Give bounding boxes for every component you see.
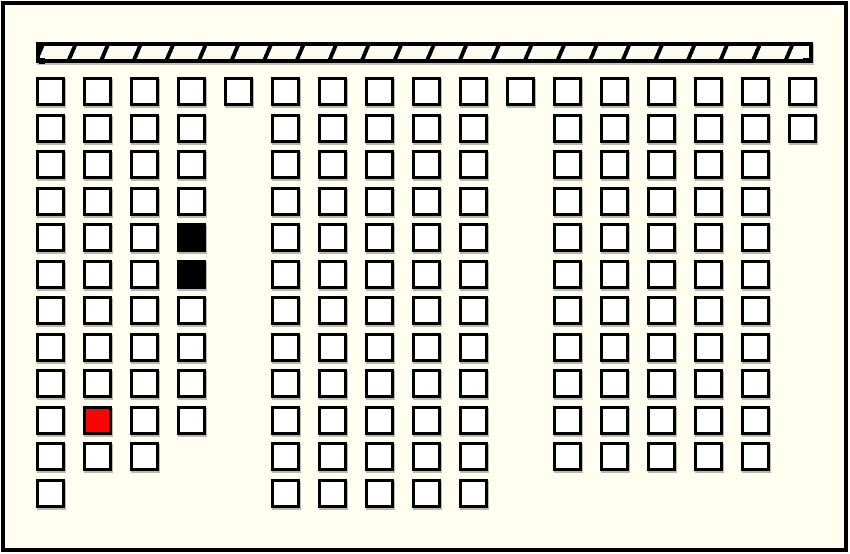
seat-r1c17[interactable] <box>788 77 817 106</box>
seat-r11c9[interactable] <box>412 442 441 471</box>
seat-r8c10[interactable] <box>459 333 488 362</box>
seat-r2c12[interactable] <box>553 114 582 143</box>
seat-r3c2[interactable] <box>83 150 112 179</box>
seat-r1c14[interactable] <box>647 77 676 106</box>
seat-r9c16[interactable] <box>741 369 770 398</box>
seat-r10c6[interactable] <box>271 406 300 435</box>
seat-r2c4[interactable] <box>177 114 206 143</box>
seat-r6c9[interactable] <box>412 260 441 289</box>
seat-r12c7[interactable] <box>318 479 347 508</box>
seat-r4c9[interactable] <box>412 187 441 216</box>
seat-r10c9[interactable] <box>412 406 441 435</box>
seat-r8c4[interactable] <box>177 333 206 362</box>
seat-r3c14[interactable] <box>647 150 676 179</box>
seat-r5c7[interactable] <box>318 223 347 252</box>
seat-r9c7[interactable] <box>318 369 347 398</box>
seat-r9c2[interactable] <box>83 369 112 398</box>
seat-r11c1[interactable] <box>36 442 65 471</box>
seat-r9c3[interactable] <box>130 369 159 398</box>
seat-r7c15[interactable] <box>694 296 723 325</box>
seat-r5c8[interactable] <box>365 223 394 252</box>
seat-r7c10[interactable] <box>459 296 488 325</box>
seat-r1c4[interactable] <box>177 77 206 106</box>
seat-r11c16[interactable] <box>741 442 770 471</box>
seat-r10c13[interactable] <box>600 406 629 435</box>
seat-r7c14[interactable] <box>647 296 676 325</box>
seat-r11c2[interactable] <box>83 442 112 471</box>
seat-r2c2[interactable] <box>83 114 112 143</box>
seat-r3c6[interactable] <box>271 150 300 179</box>
seat-r3c8[interactable] <box>365 150 394 179</box>
seat-r5c9[interactable] <box>412 223 441 252</box>
seat-r4c3[interactable] <box>130 187 159 216</box>
seat-r11c8[interactable] <box>365 442 394 471</box>
seat-r6c1[interactable] <box>36 260 65 289</box>
seat-r7c3[interactable] <box>130 296 159 325</box>
seat-r8c2[interactable] <box>83 333 112 362</box>
seat-r4c16[interactable] <box>741 187 770 216</box>
seat-r2c16[interactable] <box>741 114 770 143</box>
seat-r3c12[interactable] <box>553 150 582 179</box>
seat-r3c16[interactable] <box>741 150 770 179</box>
seat-r5c6[interactable] <box>271 223 300 252</box>
seat-r10c15[interactable] <box>694 406 723 435</box>
seat-r10c10[interactable] <box>459 406 488 435</box>
seat-r1c1[interactable] <box>36 77 65 106</box>
seat-r5c14[interactable] <box>647 223 676 252</box>
seat-map-window <box>0 0 850 554</box>
seat-r5c2[interactable] <box>83 223 112 252</box>
seat-r6c15[interactable] <box>694 260 723 289</box>
seat-r6c16[interactable] <box>741 260 770 289</box>
seat-r9c8[interactable] <box>365 369 394 398</box>
seat-r3c7[interactable] <box>318 150 347 179</box>
seat-r9c1[interactable] <box>36 369 65 398</box>
seat-r3c4[interactable] <box>177 150 206 179</box>
seat-r2c3[interactable] <box>130 114 159 143</box>
seat-r8c1[interactable] <box>36 333 65 362</box>
seat-r8c15[interactable] <box>694 333 723 362</box>
seat-r9c9[interactable] <box>412 369 441 398</box>
seat-r11c10[interactable] <box>459 442 488 471</box>
seat-r5c13[interactable] <box>600 223 629 252</box>
seat-r3c10[interactable] <box>459 150 488 179</box>
seat-r9c15[interactable] <box>694 369 723 398</box>
seat-r4c4[interactable] <box>177 187 206 216</box>
seat-r10c14[interactable] <box>647 406 676 435</box>
seat-r10c12[interactable] <box>553 406 582 435</box>
seat-r11c15[interactable] <box>694 442 723 471</box>
seat-r5c3[interactable] <box>130 223 159 252</box>
seat-r1c12[interactable] <box>553 77 582 106</box>
seat-r7c9[interactable] <box>412 296 441 325</box>
seat-r4c6[interactable] <box>271 187 300 216</box>
seat-r9c4[interactable] <box>177 369 206 398</box>
seat-r5c16[interactable] <box>741 223 770 252</box>
seat-r9c13[interactable] <box>600 369 629 398</box>
seat-r7c7[interactable] <box>318 296 347 325</box>
seat-r7c8[interactable] <box>365 296 394 325</box>
seat-r3c9[interactable] <box>412 150 441 179</box>
seat-r3c1[interactable] <box>36 150 65 179</box>
seat-r1c3[interactable] <box>130 77 159 106</box>
seat-r11c3[interactable] <box>130 442 159 471</box>
seat-r1c9[interactable] <box>412 77 441 106</box>
seat-r10c1[interactable] <box>36 406 65 435</box>
seat-r8c14[interactable] <box>647 333 676 362</box>
seat-r4c13[interactable] <box>600 187 629 216</box>
seat-r12c8[interactable] <box>365 479 394 508</box>
screen-bar <box>36 42 813 63</box>
seat-r7c6[interactable] <box>271 296 300 325</box>
seat-r10c7[interactable] <box>318 406 347 435</box>
seat-r1c2[interactable] <box>83 77 112 106</box>
seat-r6c8[interactable] <box>365 260 394 289</box>
seat-r4c1[interactable] <box>36 187 65 216</box>
seat-r9c10[interactable] <box>459 369 488 398</box>
seat-r10c3[interactable] <box>130 406 159 435</box>
seat-r2c6[interactable] <box>271 114 300 143</box>
seat-r6c3[interactable] <box>130 260 159 289</box>
seat-r6c7[interactable] <box>318 260 347 289</box>
seat-r5c4-occupied[interactable] <box>177 223 206 252</box>
seat-r10c2-selected[interactable] <box>83 406 112 435</box>
seat-r11c12[interactable] <box>553 442 582 471</box>
seat-r12c10[interactable] <box>459 479 488 508</box>
seat-r2c17[interactable] <box>788 114 817 143</box>
seat-r9c12[interactable] <box>553 369 582 398</box>
seat-r6c4-occupied[interactable] <box>177 260 206 289</box>
seat-r4c10[interactable] <box>459 187 488 216</box>
seat-r6c6[interactable] <box>271 260 300 289</box>
seat-r8c16[interactable] <box>741 333 770 362</box>
seat-r8c3[interactable] <box>130 333 159 362</box>
seat-r10c4[interactable] <box>177 406 206 435</box>
seat-r5c1[interactable] <box>36 223 65 252</box>
seat-r1c15[interactable] <box>694 77 723 106</box>
seat-r6c2[interactable] <box>83 260 112 289</box>
seat-r1c10[interactable] <box>459 77 488 106</box>
seat-r1c13[interactable] <box>600 77 629 106</box>
seat-r1c6[interactable] <box>271 77 300 106</box>
seat-r1c8[interactable] <box>365 77 394 106</box>
seat-r1c11[interactable] <box>506 77 535 106</box>
seat-r11c14[interactable] <box>647 442 676 471</box>
seat-r3c3[interactable] <box>130 150 159 179</box>
seat-r12c1[interactable] <box>36 479 65 508</box>
seat-r7c12[interactable] <box>553 296 582 325</box>
seat-r5c12[interactable] <box>553 223 582 252</box>
seat-r1c16[interactable] <box>741 77 770 106</box>
seat-r12c9[interactable] <box>412 479 441 508</box>
seat-r4c8[interactable] <box>365 187 394 216</box>
seat-r6c14[interactable] <box>647 260 676 289</box>
seat-r3c13[interactable] <box>600 150 629 179</box>
seat-r8c7[interactable] <box>318 333 347 362</box>
seat-r11c7[interactable] <box>318 442 347 471</box>
seat-r8c8[interactable] <box>365 333 394 362</box>
seat-r8c12[interactable] <box>553 333 582 362</box>
seat-r6c10[interactable] <box>459 260 488 289</box>
seat-r4c15[interactable] <box>694 187 723 216</box>
seat-r4c2[interactable] <box>83 187 112 216</box>
seat-r10c16[interactable] <box>741 406 770 435</box>
seat-r9c6[interactable] <box>271 369 300 398</box>
seat-r8c13[interactable] <box>600 333 629 362</box>
seat-r9c14[interactable] <box>647 369 676 398</box>
seat-r1c5[interactable] <box>224 77 253 106</box>
seat-r7c4[interactable] <box>177 296 206 325</box>
seat-r2c9[interactable] <box>412 114 441 143</box>
seat-r6c13[interactable] <box>600 260 629 289</box>
seat-r4c7[interactable] <box>318 187 347 216</box>
seat-r7c1[interactable] <box>36 296 65 325</box>
seat-r2c1[interactable] <box>36 114 65 143</box>
seat-r2c10[interactable] <box>459 114 488 143</box>
seat-r2c14[interactable] <box>647 114 676 143</box>
seat-r11c6[interactable] <box>271 442 300 471</box>
seat-r7c16[interactable] <box>741 296 770 325</box>
seat-r2c8[interactable] <box>365 114 394 143</box>
seat-r2c15[interactable] <box>694 114 723 143</box>
seat-r8c6[interactable] <box>271 333 300 362</box>
seat-r12c6[interactable] <box>271 479 300 508</box>
seat-r10c8[interactable] <box>365 406 394 435</box>
seat-r2c7[interactable] <box>318 114 347 143</box>
seat-r5c10[interactable] <box>459 223 488 252</box>
seat-r4c14[interactable] <box>647 187 676 216</box>
seat-r1c7[interactable] <box>318 77 347 106</box>
seat-r5c15[interactable] <box>694 223 723 252</box>
seat-r3c15[interactable] <box>694 150 723 179</box>
seat-r8c9[interactable] <box>412 333 441 362</box>
seat-r6c12[interactable] <box>553 260 582 289</box>
seat-r7c13[interactable] <box>600 296 629 325</box>
seat-r11c13[interactable] <box>600 442 629 471</box>
seat-r7c2[interactable] <box>83 296 112 325</box>
seat-r2c13[interactable] <box>600 114 629 143</box>
seat-r4c12[interactable] <box>553 187 582 216</box>
